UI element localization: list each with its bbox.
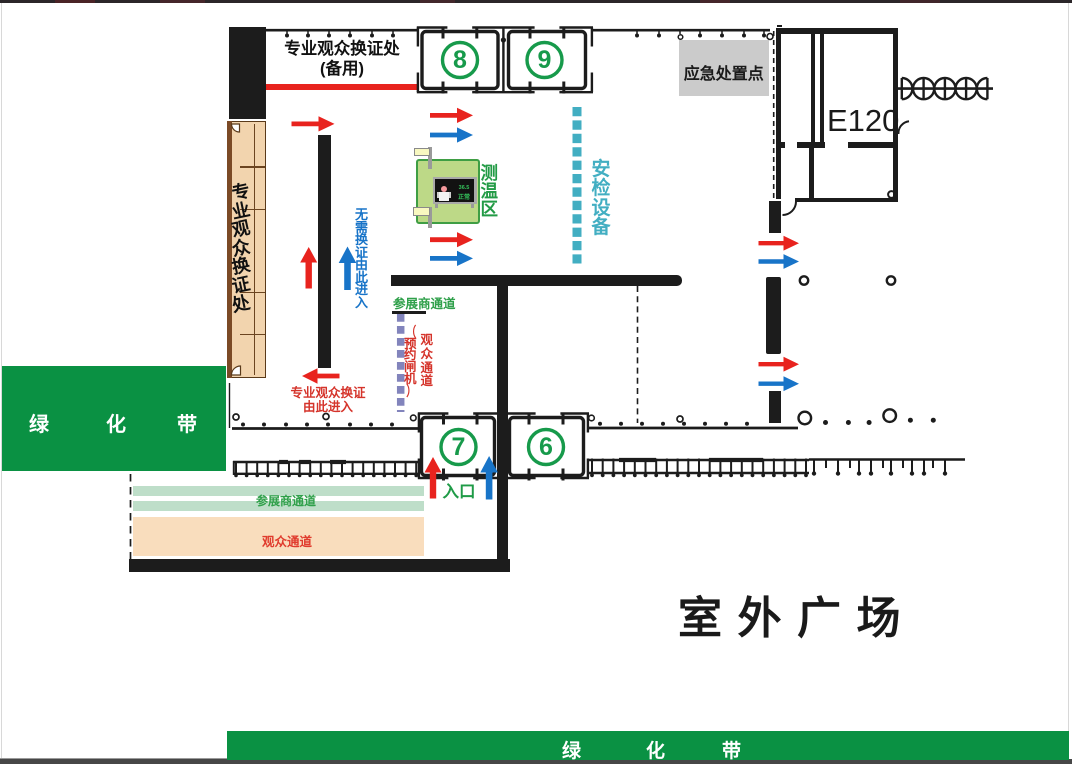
svg-text:8: 8 [453, 46, 467, 74]
svg-text:9: 9 [538, 46, 552, 74]
svg-text:6: 6 [539, 433, 553, 461]
svg-text:7: 7 [452, 433, 466, 461]
